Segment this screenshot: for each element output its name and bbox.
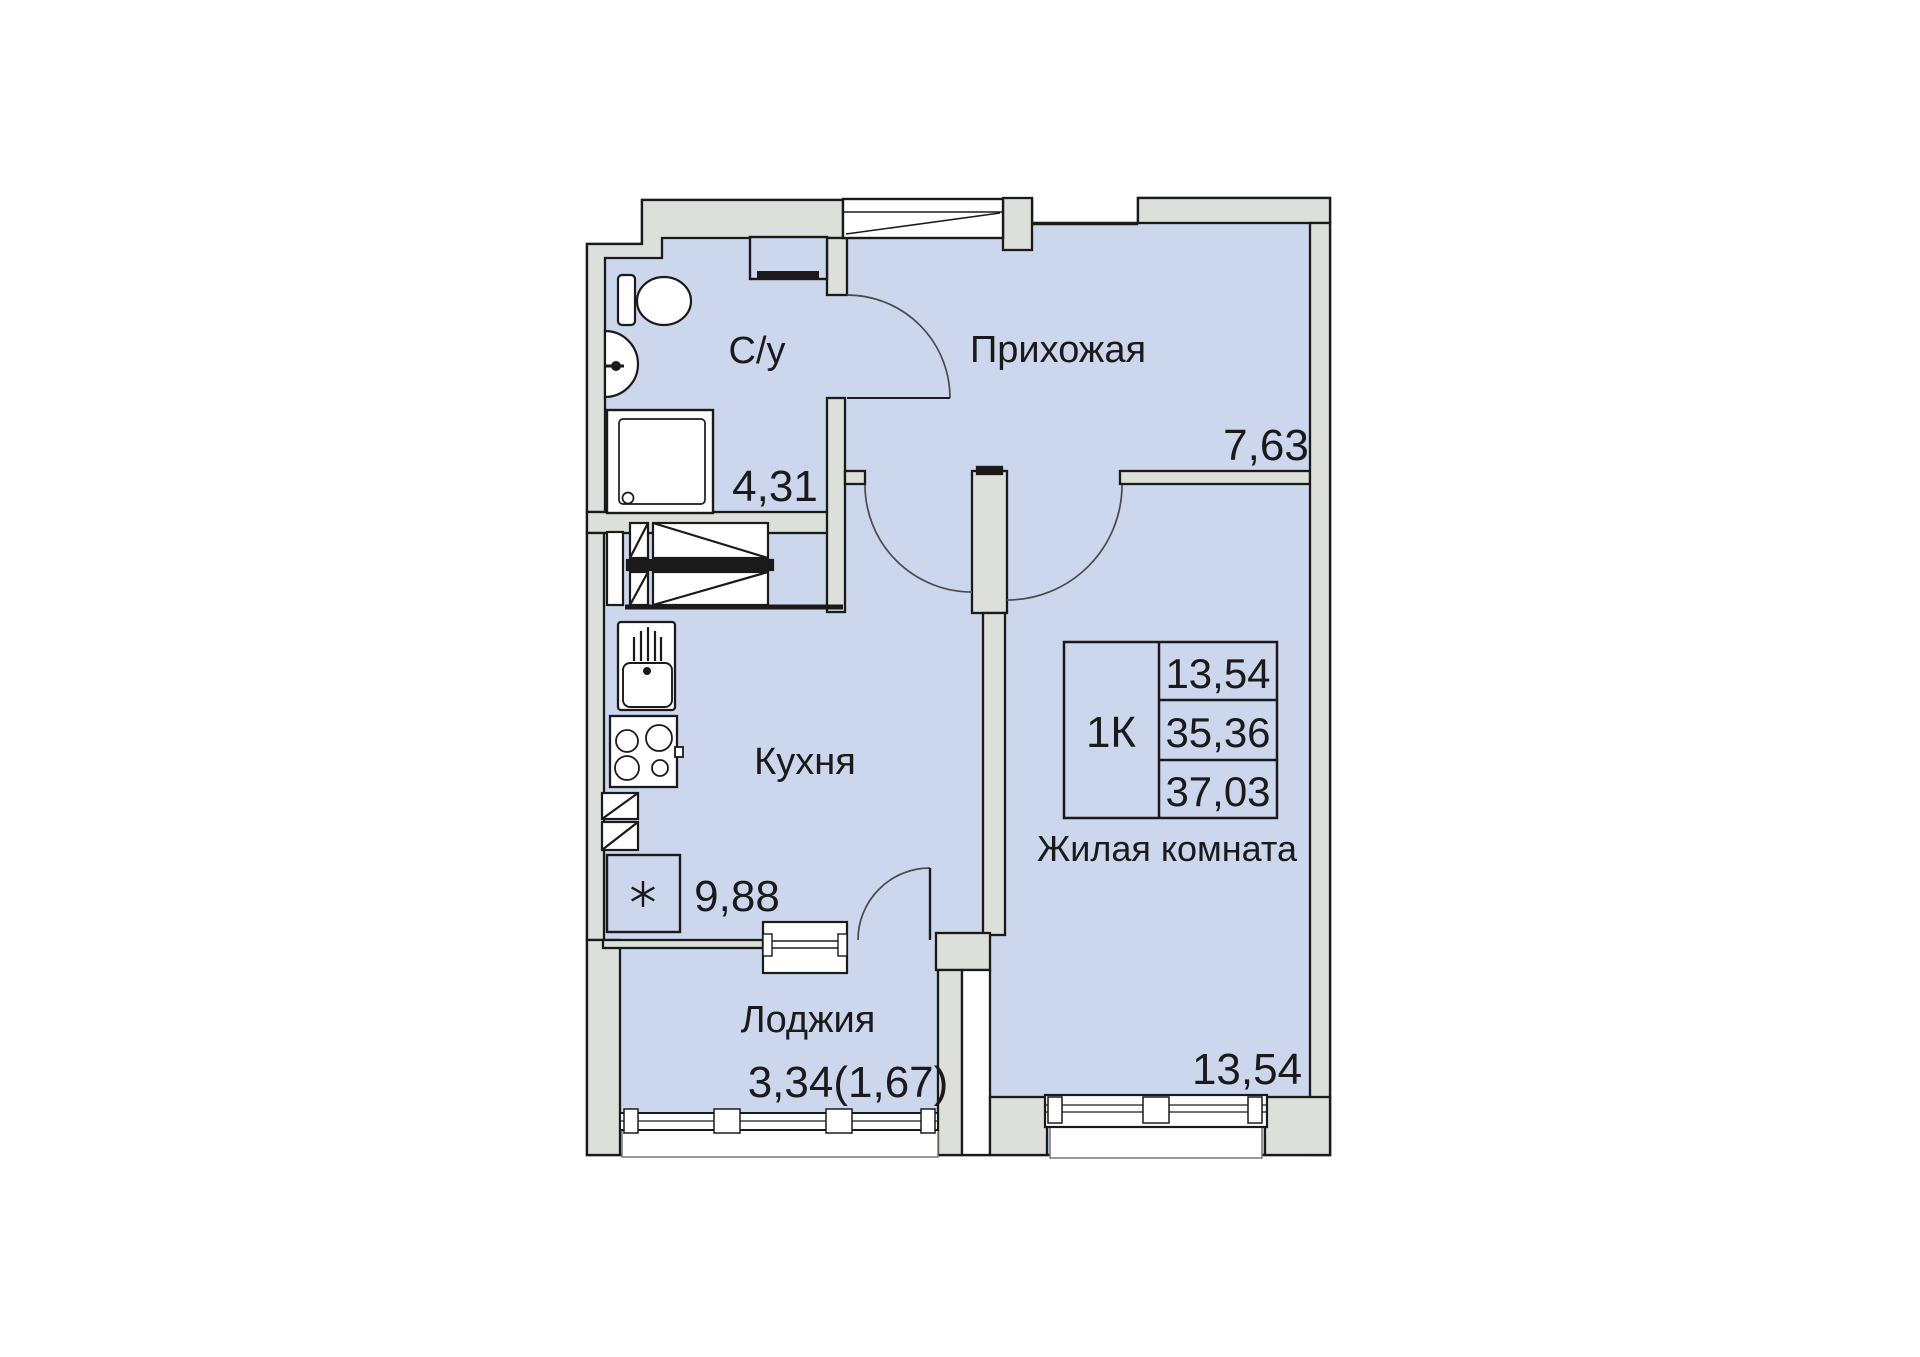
wall-window-pier-left	[990, 1097, 1047, 1155]
room-label-loggia: Лоджия	[741, 999, 876, 1041]
room-label-kitchen: Кухня	[754, 741, 856, 783]
shower-cabin-icon	[607, 410, 713, 513]
room-label-bathroom: С/у	[729, 330, 786, 372]
wall-junction	[936, 933, 990, 970]
kitchen-sink-icon	[618, 622, 675, 710]
wall-top-right	[1138, 198, 1330, 223]
room-area-bathroom: 4,31	[732, 462, 818, 511]
wall-kitchen-living-partition	[983, 613, 1005, 935]
unit-type-label: 1К	[1086, 708, 1136, 757]
room-area-living: 13,54	[1192, 1045, 1302, 1094]
living-room-window-icon	[1045, 1095, 1267, 1158]
wall-hall-living	[1120, 471, 1310, 484]
balcony-window-icon	[763, 922, 847, 973]
wall-hall-stub	[845, 471, 865, 484]
wall-bathroom-right-top	[827, 238, 847, 295]
wall-entrance-pier	[1003, 198, 1032, 250]
floor-plan-image: 1К 13,54 35,36 37,03 С/у 4,31 Прихожая 7…	[0, 0, 1920, 1357]
wall-kitchen-left	[587, 533, 604, 940]
room-label-living: Жилая комната	[1037, 828, 1298, 869]
room-area-kitchen: 9,88	[694, 872, 780, 921]
room-label-hallway: Прихожая	[970, 329, 1146, 371]
unit-area-without-loggia: 35,36	[1165, 709, 1270, 756]
stove-icon	[610, 716, 683, 787]
toilet-icon	[618, 275, 691, 325]
wall-pillar-cap	[977, 467, 1002, 474]
entrance-door-icon	[843, 199, 1003, 238]
wall-niche	[962, 970, 990, 1155]
appliance-icon	[602, 793, 638, 850]
room-area-loggia: 3,34(1,67)	[748, 1058, 949, 1107]
unit-total-area: 37,03	[1165, 768, 1270, 815]
wall-right	[1310, 223, 1330, 1155]
wall-loggia-left	[587, 940, 620, 1155]
fridge-icon	[607, 855, 680, 932]
wall-kitchen-bottom	[603, 940, 763, 948]
floor-plan-page: 1К 13,54 35,36 37,03 С/у 4,31 Прихожая 7…	[0, 0, 1920, 1357]
room-area-hallway: 7,63	[1223, 421, 1309, 470]
water-heater-icon	[750, 237, 827, 280]
wall-bathroom-right-bottom	[827, 398, 845, 612]
loggia-glazing-icon	[620, 1109, 938, 1157]
unit-living-area: 13,54	[1165, 650, 1270, 697]
wall-central-pillar	[972, 471, 1007, 613]
wall-window-pier-right	[1265, 1097, 1330, 1155]
